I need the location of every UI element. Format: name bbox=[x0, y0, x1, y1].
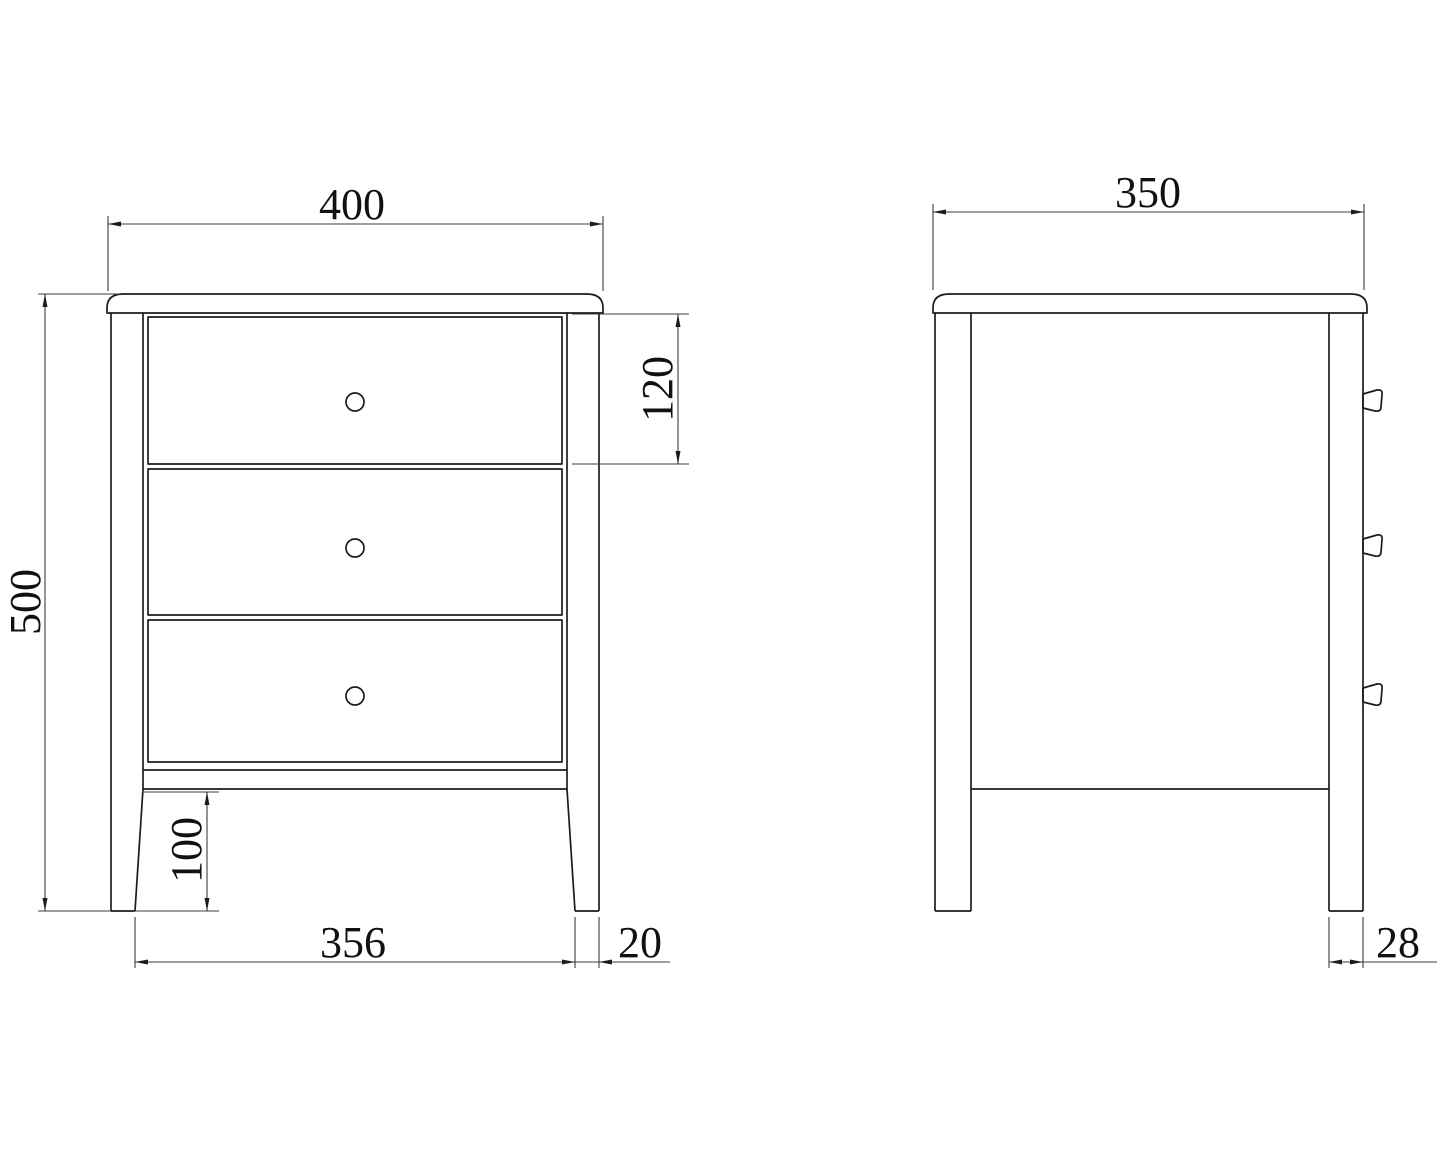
front-right-leg-taper-edge bbox=[567, 789, 575, 911]
dim-label-side-depth: 350 bbox=[1115, 168, 1181, 217]
dim-arrow-up bbox=[676, 314, 681, 327]
drawing-canvas: 400 500 120 100 356 bbox=[0, 0, 1445, 1156]
side-knob-2 bbox=[1363, 535, 1382, 556]
dim-arrow-right bbox=[1351, 210, 1364, 215]
dim-side-depth: 350 bbox=[933, 168, 1364, 290]
dim-label-drawer-height: 120 bbox=[633, 356, 682, 422]
dim-arrow-up bbox=[205, 792, 210, 805]
dim-arrow-up bbox=[43, 294, 48, 307]
dim-arrow-left bbox=[108, 222, 121, 227]
front-top-slab bbox=[107, 294, 603, 313]
dim-label-side-leg-width: 28 bbox=[1376, 918, 1420, 967]
dim-arrow-left bbox=[135, 960, 148, 965]
dim-drawer-height: 120 bbox=[572, 314, 689, 464]
dim-front-height: 500 bbox=[1, 294, 121, 911]
dim-front-width: 400 bbox=[108, 180, 603, 291]
dim-foot-width: 20 bbox=[575, 917, 670, 968]
dim-arrow-left bbox=[599, 960, 612, 965]
dim-leg-span: 356 bbox=[135, 917, 575, 968]
dim-arrow-right bbox=[590, 222, 603, 227]
side-view bbox=[933, 294, 1382, 911]
dim-arrow-right bbox=[562, 960, 575, 965]
drawer-2 bbox=[148, 469, 562, 615]
dim-side-leg-width: 28 bbox=[1329, 917, 1437, 968]
front-left-leg-taper-edge bbox=[135, 789, 143, 911]
drawer-1 bbox=[148, 317, 562, 464]
dim-arrow-down bbox=[205, 898, 210, 911]
drawer-1-knob bbox=[346, 393, 364, 411]
dim-arrow-down bbox=[43, 898, 48, 911]
dim-label-front-height: 500 bbox=[1, 569, 50, 635]
drawer-2-knob bbox=[346, 539, 364, 557]
drawer-3 bbox=[148, 620, 562, 762]
dim-label-leg-span: 356 bbox=[320, 918, 386, 967]
dim-leg-height: 100 bbox=[135, 792, 219, 911]
side-top-slab bbox=[933, 294, 1367, 313]
dim-arrow-right bbox=[1350, 960, 1363, 965]
technical-drawing: 400 500 120 100 356 bbox=[0, 0, 1445, 1156]
side-knob-3 bbox=[1363, 684, 1382, 705]
dim-label-front-width: 400 bbox=[319, 180, 385, 229]
drawer-3-knob bbox=[346, 687, 364, 705]
dim-arrow-left bbox=[933, 210, 946, 215]
dim-arrow-down bbox=[676, 451, 681, 464]
side-knob-1 bbox=[1363, 390, 1382, 411]
dim-label-leg-height: 100 bbox=[162, 817, 211, 883]
dim-label-foot-width: 20 bbox=[618, 918, 662, 967]
dim-arrow-left bbox=[1329, 960, 1342, 965]
